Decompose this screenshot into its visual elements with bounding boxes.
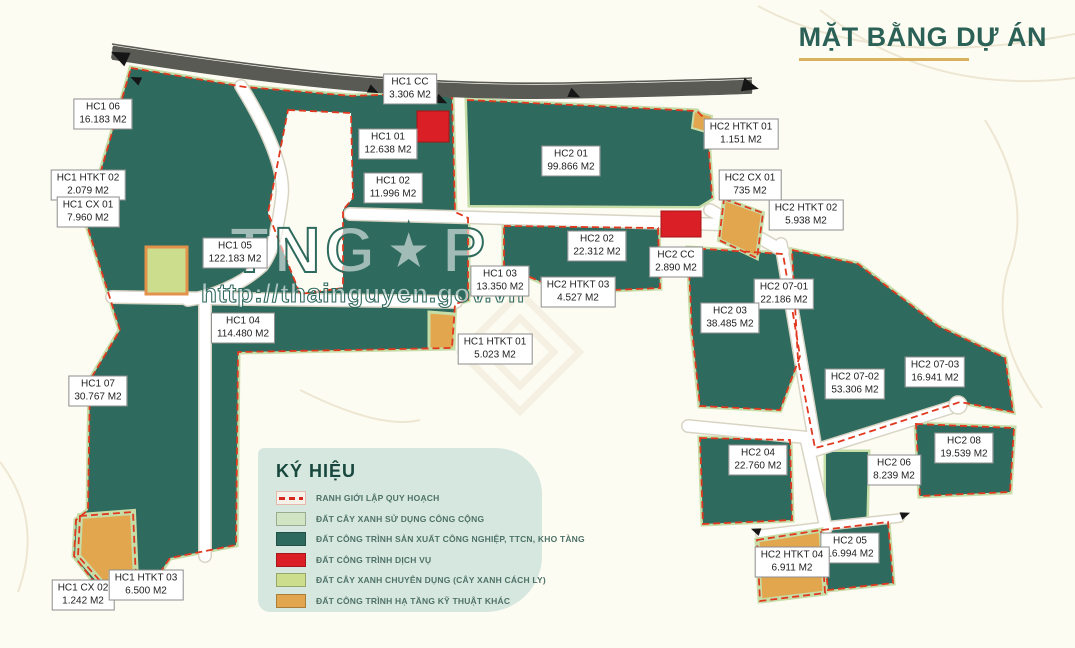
legend-item-label: RANH GIỚI LẬP QUY HOẠCH bbox=[316, 493, 439, 503]
tng-watermark: TNG★P http://thainguyen.gov.vn bbox=[201, 214, 525, 308]
title-block: MẶT BẰNG DỰ ÁN bbox=[799, 22, 1047, 61]
parcel-hc2-htkt01 bbox=[692, 111, 712, 133]
legend-item: ĐẤT CÂY XANH CHUYÊN DỤNG (CÂY XANH CÁCH … bbox=[276, 573, 528, 587]
legend-item: ĐẤT CÔNG TRÌNH HẠ TẦNG KỸ THUẬT KHÁC bbox=[276, 594, 528, 608]
parcel-hc2-htkt04 bbox=[757, 530, 825, 601]
boundary-dash-swatch bbox=[276, 491, 306, 505]
legend: KÝ HIỆU RANH GIỚI LẬP QUY HOẠCHĐẤT CÂY X… bbox=[258, 448, 542, 612]
legend-item: ĐẤT CÂY XANH SỬ DỤNG CÔNG CỘNG bbox=[276, 512, 528, 526]
legend-item: RANH GIỚI LẬP QUY HOẠCH bbox=[276, 491, 528, 505]
infrastructure-swatch bbox=[276, 594, 306, 608]
legend-item: ĐẤT CÔNG TRÌNH DỊCH VỤ bbox=[276, 553, 528, 567]
legend-item-label: ĐẤT CÔNG TRÌNH DỊCH VỤ bbox=[316, 555, 431, 565]
parcel-green-isolation-square bbox=[146, 247, 187, 294]
title-underline bbox=[799, 58, 969, 61]
legend-item-label: ĐẤT CÂY XANH CHUYÊN DỤNG (CÂY XANH CÁCH … bbox=[316, 575, 546, 585]
parcel-hc2-08 bbox=[916, 424, 1014, 496]
legend-title: KÝ HIỆU bbox=[276, 461, 528, 482]
parcel-hc1-htkt01 bbox=[429, 312, 455, 349]
diamond-watermark bbox=[461, 293, 580, 412]
parcel-hc2-04 bbox=[700, 438, 792, 524]
parcel-service-hc2-cc bbox=[661, 211, 701, 237]
green_isolation-swatch bbox=[276, 573, 306, 587]
legend-item-label: ĐẤT CÂY XANH SỬ DỤNG CÔNG CỘNG bbox=[316, 514, 484, 524]
parcel-hc1-htkt03 bbox=[78, 512, 136, 591]
parcel-hc2-02 bbox=[504, 226, 660, 292]
service-swatch bbox=[276, 553, 306, 567]
parcel-hc2-05 bbox=[822, 522, 893, 590]
watermark-logo: TNG★P bbox=[230, 214, 490, 286]
parcel-service-hc1 bbox=[417, 111, 449, 142]
legend-item: ĐẤT CÔNG TRÌNH SẢN XUẤT CÔNG NGHIỆP, TTC… bbox=[276, 532, 528, 546]
site-plan-page: TNG★P http://thainguyen.gov.vn HC1 0616.… bbox=[0, 0, 1075, 648]
cul-de-sac bbox=[949, 396, 967, 414]
green_public-swatch bbox=[276, 512, 306, 526]
legend-item-label: ĐẤT CÔNG TRÌNH SẢN XUẤT CÔNG NGHIỆP, TTC… bbox=[316, 534, 585, 544]
watermark-url: http://thainguyen.gov.vn bbox=[201, 278, 525, 308]
industrial-swatch bbox=[276, 532, 306, 546]
parcel-hc2-01 bbox=[467, 100, 712, 206]
page-title: MẶT BẰNG DỰ ÁN bbox=[799, 22, 1047, 53]
legend-item-label: ĐẤT CÔNG TRÌNH HẠ TẦNG KỸ THUẬT KHÁC bbox=[316, 596, 510, 606]
